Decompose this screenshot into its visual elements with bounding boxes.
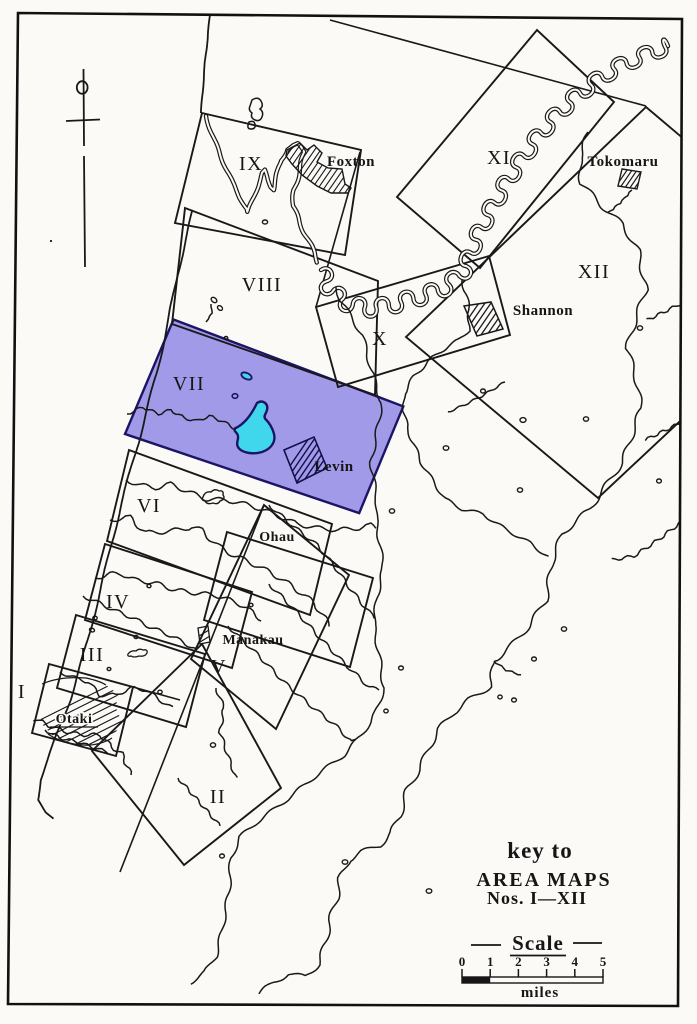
svg-text:V: V — [211, 656, 227, 678]
svg-text:I: I — [18, 681, 26, 703]
svg-text:VII: VII — [173, 373, 205, 395]
svg-text:3: 3 — [543, 954, 550, 969]
svg-text:miles: miles — [521, 985, 559, 1001]
svg-text:III: III — [80, 644, 104, 666]
svg-text:Nos. I—XII: Nos. I—XII — [487, 888, 587, 908]
svg-text:Tokomaru: Tokomaru — [588, 154, 659, 170]
svg-text:XII: XII — [578, 261, 610, 283]
svg-text:1: 1 — [487, 954, 494, 969]
svg-text:0: 0 — [459, 954, 466, 969]
svg-text:X: X — [372, 328, 388, 350]
svg-text:VIII: VIII — [242, 274, 282, 296]
svg-text:4: 4 — [572, 954, 579, 969]
svg-text:XI: XI — [487, 147, 511, 169]
svg-text:Scale: Scale — [512, 931, 564, 955]
svg-text:Manakau: Manakau — [222, 633, 283, 648]
svg-text:Levin: Levin — [314, 459, 353, 475]
svg-text:Ohau: Ohau — [259, 530, 294, 545]
svg-text:IV: IV — [106, 591, 130, 613]
svg-text:Foxton: Foxton — [327, 154, 375, 170]
svg-text:5: 5 — [600, 954, 607, 969]
svg-text:II: II — [210, 786, 226, 808]
svg-text:Shannon: Shannon — [513, 303, 573, 319]
svg-text:IX: IX — [239, 153, 263, 175]
svg-text:2: 2 — [515, 954, 522, 969]
svg-text:VI: VI — [137, 495, 161, 517]
svg-text:Otaki: Otaki — [56, 712, 93, 727]
svg-text:key to: key to — [507, 838, 572, 863]
